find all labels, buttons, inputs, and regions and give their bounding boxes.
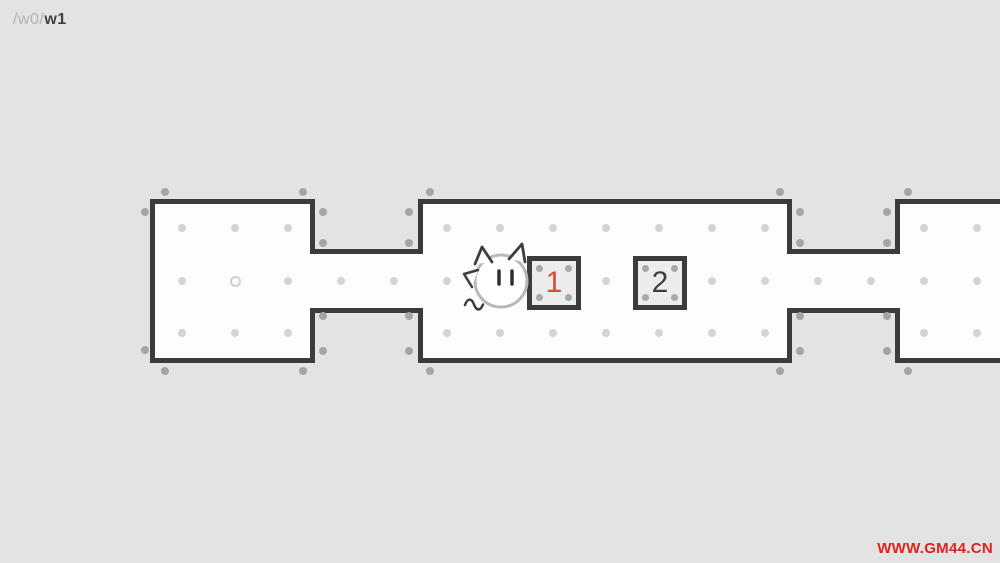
floor-dot [973,329,981,337]
floor-dot [602,224,610,232]
floor-dot [920,329,928,337]
floor-dot [443,277,451,285]
ground-dot [299,367,307,375]
ground-dot [161,367,169,375]
ground-dot [426,188,434,196]
ground-dot [426,367,434,375]
floor-dot [337,277,345,285]
player-ear-left-icon [475,247,492,264]
floor-dot [761,329,769,337]
game-stage: /w0/w1 12 WWW.GM44.CN [0,0,1000,563]
floor-dot [655,224,663,232]
corridor-2 [787,249,900,313]
floor-dot [231,224,239,232]
floor-dot [496,329,504,337]
floor-dot [708,277,716,285]
floor-dot [284,277,292,285]
right-room [895,199,1000,363]
player-ear-right-icon [509,244,525,262]
ground-dot [796,312,804,320]
ground-dot [904,367,912,375]
corridor-1 [310,249,423,313]
ground-dot [405,239,413,247]
box-corner-dot [671,265,678,272]
numbered-box-2[interactable]: 2 [633,256,687,310]
floor-dot [814,277,822,285]
ground-dot [319,239,327,247]
ground-dot [299,188,307,196]
box-corner-dot [642,265,649,272]
player-tail-icon [465,300,483,310]
floor-dot [655,329,663,337]
ground-dot [796,208,804,216]
floor-dot [761,224,769,232]
ground-dot [405,312,413,320]
floor-dot [761,277,769,285]
floor-dot [231,329,239,337]
ground-dot [141,346,149,354]
floor-dot [284,329,292,337]
floor-dot [178,329,186,337]
floor-dot [390,277,398,285]
watermark-text: WWW.GM44.CN [877,540,993,557]
floor-dot [602,329,610,337]
floor-dot [178,224,186,232]
ground-dot [161,188,169,196]
breadcrumb-current-level: w1 [44,11,66,28]
floor-dot [443,224,451,232]
floor-dot [920,277,928,285]
box-number-label: 1 [546,268,563,298]
floor-dot [973,277,981,285]
ground-dot [405,208,413,216]
floor-dot [443,329,451,337]
ground-dot [319,347,327,355]
ground-dot [776,367,784,375]
ground-dot [883,347,891,355]
floor-dot [549,224,557,232]
floor-dot [496,224,504,232]
floor-dot [973,224,981,232]
floor-dot [920,224,928,232]
floor-dot [708,224,716,232]
floor-dot [602,277,610,285]
breadcrumb: /w0/w1 [13,11,67,29]
ring-marker [230,276,241,287]
ground-dot [405,347,413,355]
breadcrumb-world-link[interactable]: /w0/ [13,11,44,28]
floor-dot [284,224,292,232]
ground-dot [776,188,784,196]
box-corner-dot [565,294,572,301]
ground-dot [796,239,804,247]
box-number-label: 2 [652,268,669,298]
box-corner-dot [565,265,572,272]
ground-dot [883,208,891,216]
floor-dot [549,329,557,337]
ground-dot [883,239,891,247]
floor-dot [178,277,186,285]
box-corner-dot [642,294,649,301]
box-corner-dot [671,294,678,301]
floor-dot [867,277,875,285]
ground-dot [883,312,891,320]
ground-dot [796,347,804,355]
floor-dot [708,329,716,337]
ground-dot [904,188,912,196]
ground-dot [319,312,327,320]
ground-dot [319,208,327,216]
player-character[interactable] [461,241,541,321]
ground-dot [141,208,149,216]
